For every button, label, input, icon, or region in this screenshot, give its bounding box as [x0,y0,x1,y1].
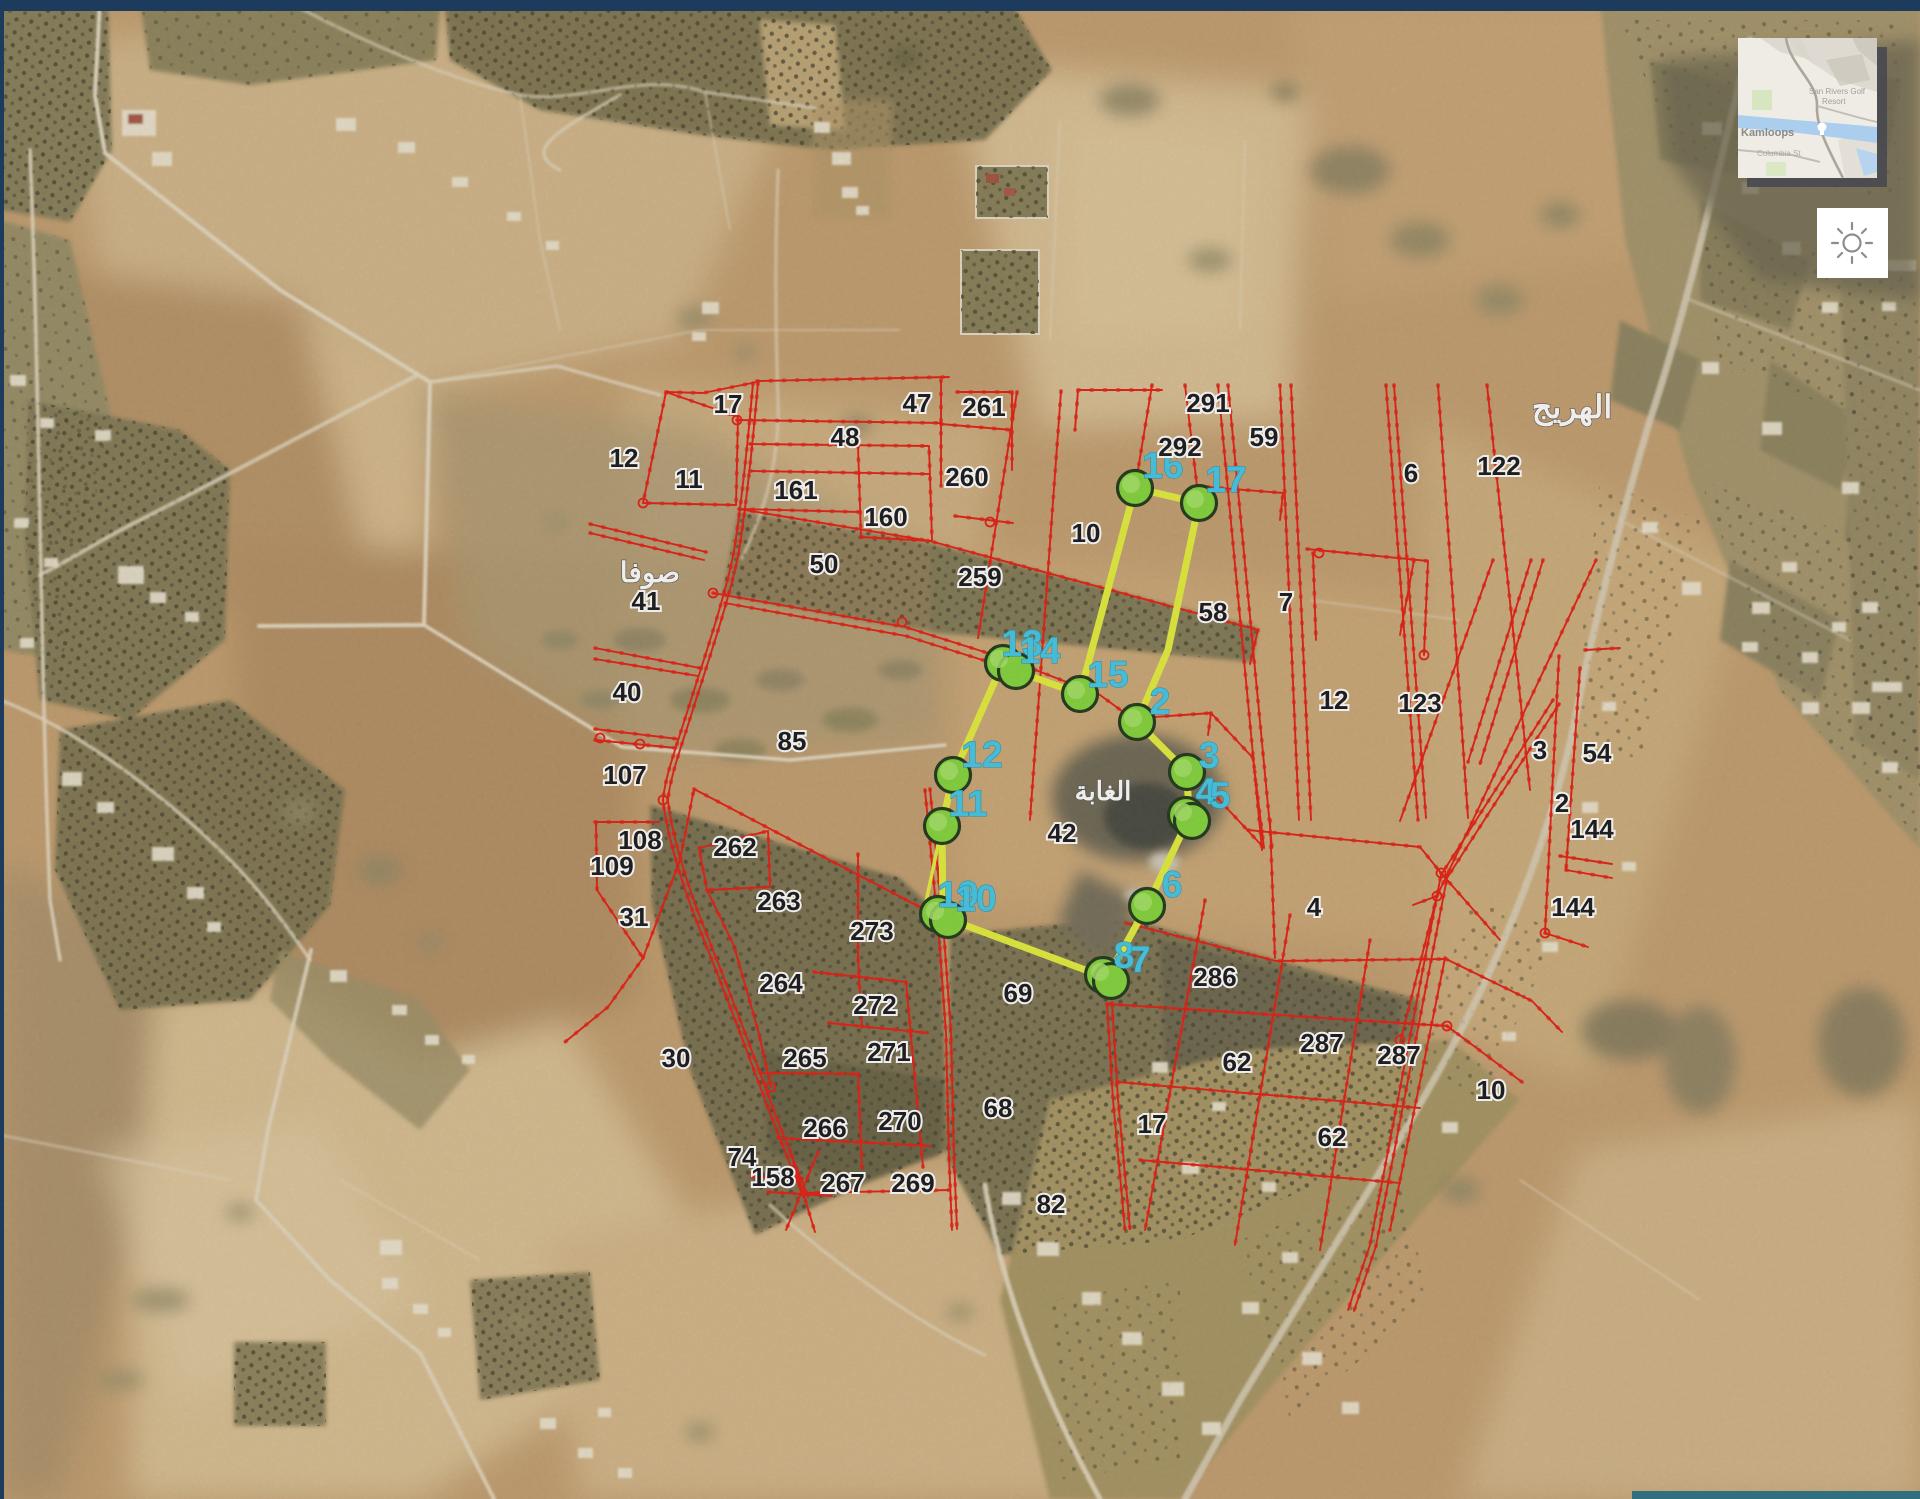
svg-text:Kamloops: Kamloops [1741,127,1794,139]
svg-text:San Rivers Golf: San Rivers Golf [1809,87,1866,96]
svg-text:Columbia St: Columbia St [1757,149,1801,158]
svg-text:Resort: Resort [1822,97,1846,106]
